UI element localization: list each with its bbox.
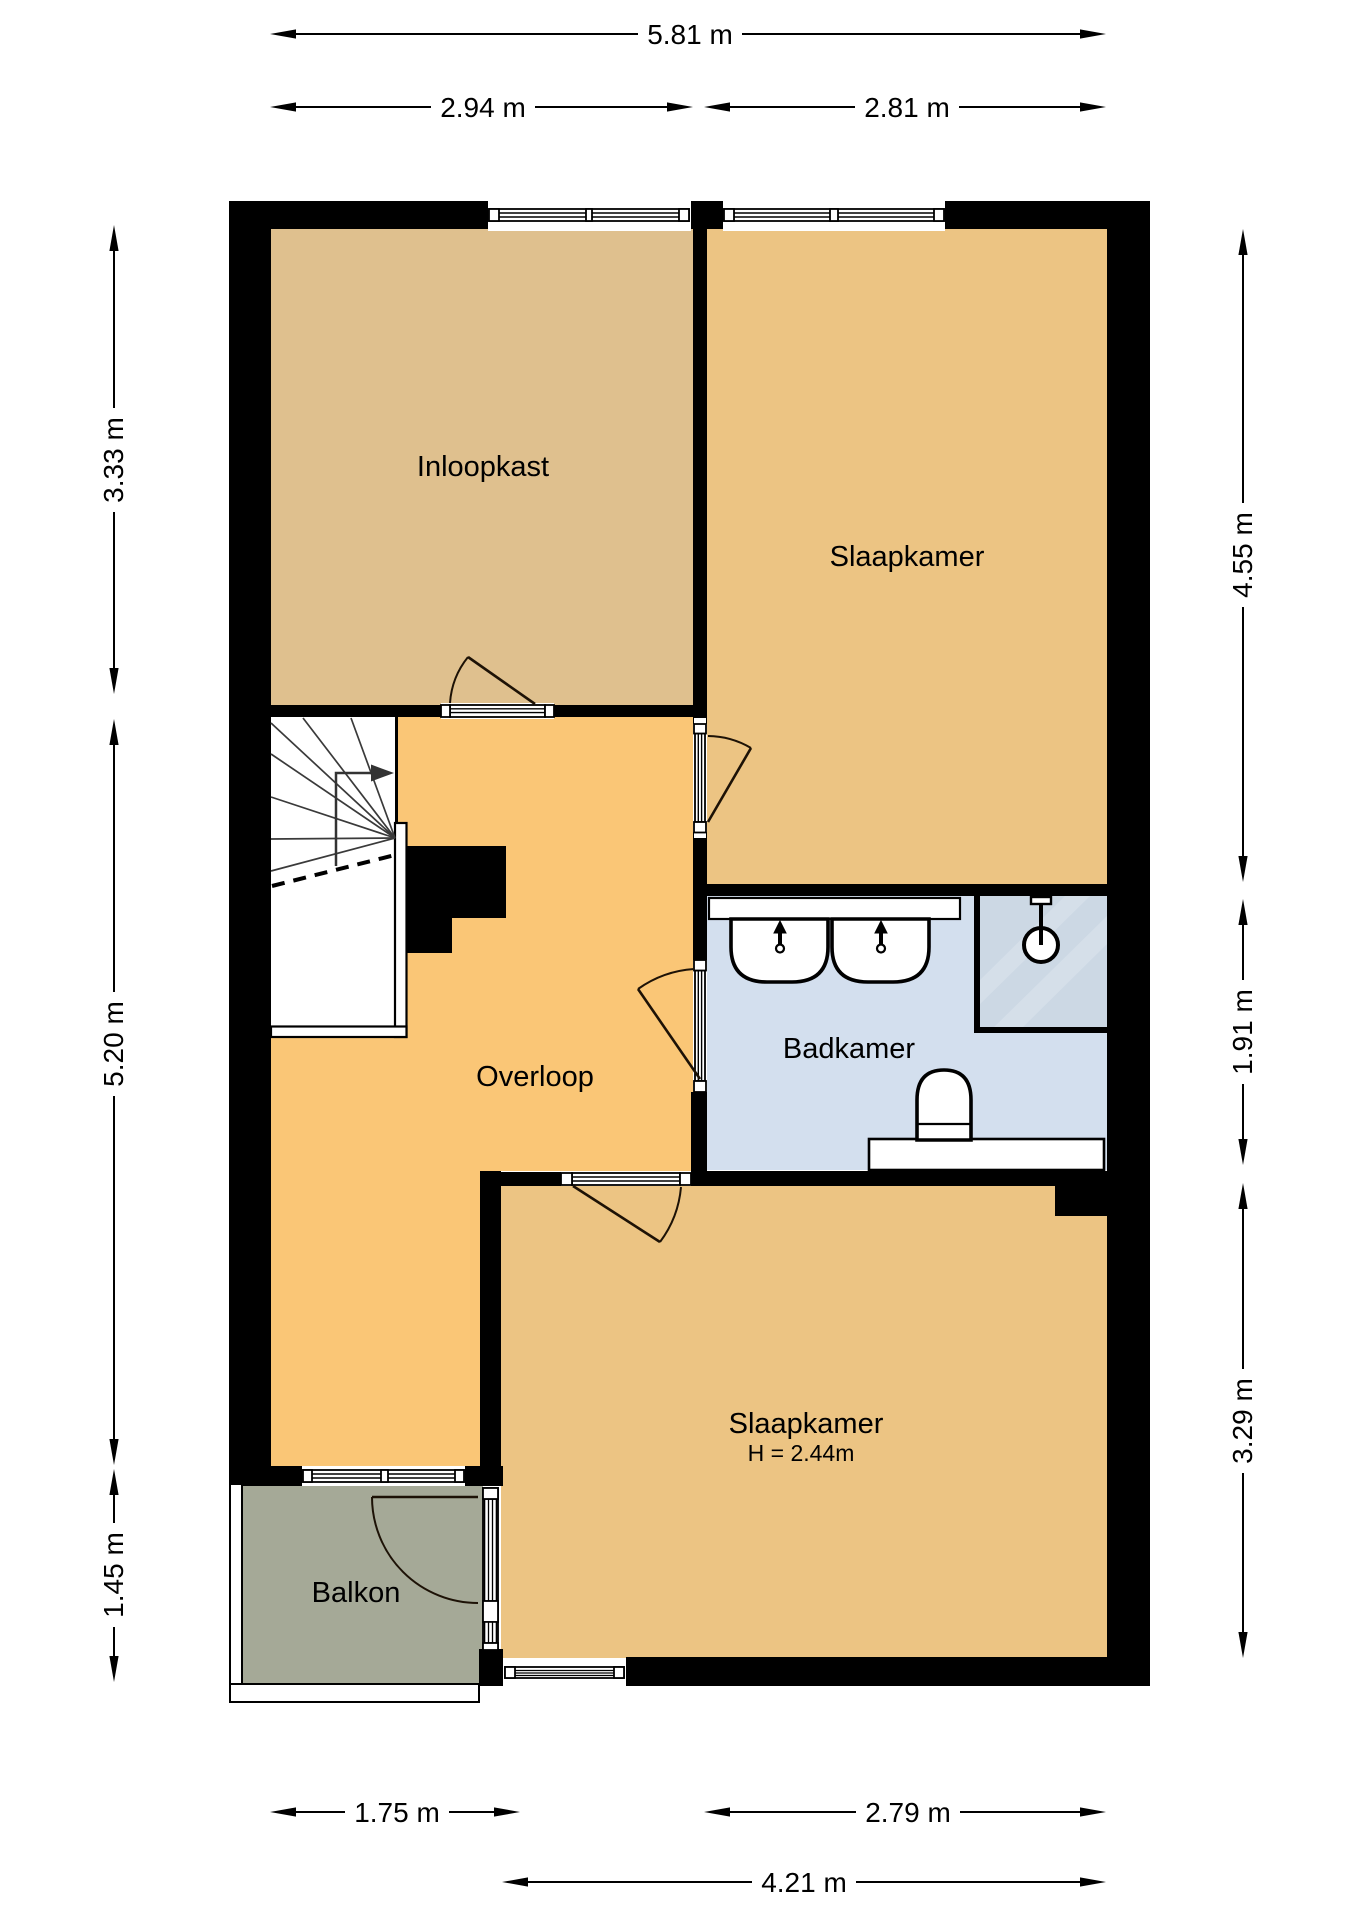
svg-text:1.45 m: 1.45 m xyxy=(98,1532,129,1618)
svg-text:2.81 m: 2.81 m xyxy=(864,92,950,123)
svg-text:H = 2.44m: H = 2.44m xyxy=(748,1440,855,1466)
svg-text:Inloopkast: Inloopkast xyxy=(417,451,549,483)
svg-text:Overloop: Overloop xyxy=(476,1061,594,1093)
svg-text:3.33 m: 3.33 m xyxy=(98,417,129,503)
svg-text:Badkamer: Badkamer xyxy=(783,1033,916,1065)
svg-text:Balkon: Balkon xyxy=(312,1577,401,1609)
svg-text:4.55 m: 4.55 m xyxy=(1227,512,1258,598)
svg-text:3.29 m: 3.29 m xyxy=(1227,1378,1258,1464)
svg-text:1.91 m: 1.91 m xyxy=(1227,989,1258,1075)
svg-text:5.81 m: 5.81 m xyxy=(647,19,733,50)
svg-text:5.20 m: 5.20 m xyxy=(98,1001,129,1087)
svg-text:2.94 m: 2.94 m xyxy=(440,92,526,123)
svg-text:Slaapkamer: Slaapkamer xyxy=(729,1408,884,1440)
svg-text:4.21 m: 4.21 m xyxy=(761,1867,847,1898)
svg-text:Slaapkamer: Slaapkamer xyxy=(830,541,985,573)
svg-text:1.75 m: 1.75 m xyxy=(354,1797,440,1828)
svg-text:2.79 m: 2.79 m xyxy=(865,1797,951,1828)
